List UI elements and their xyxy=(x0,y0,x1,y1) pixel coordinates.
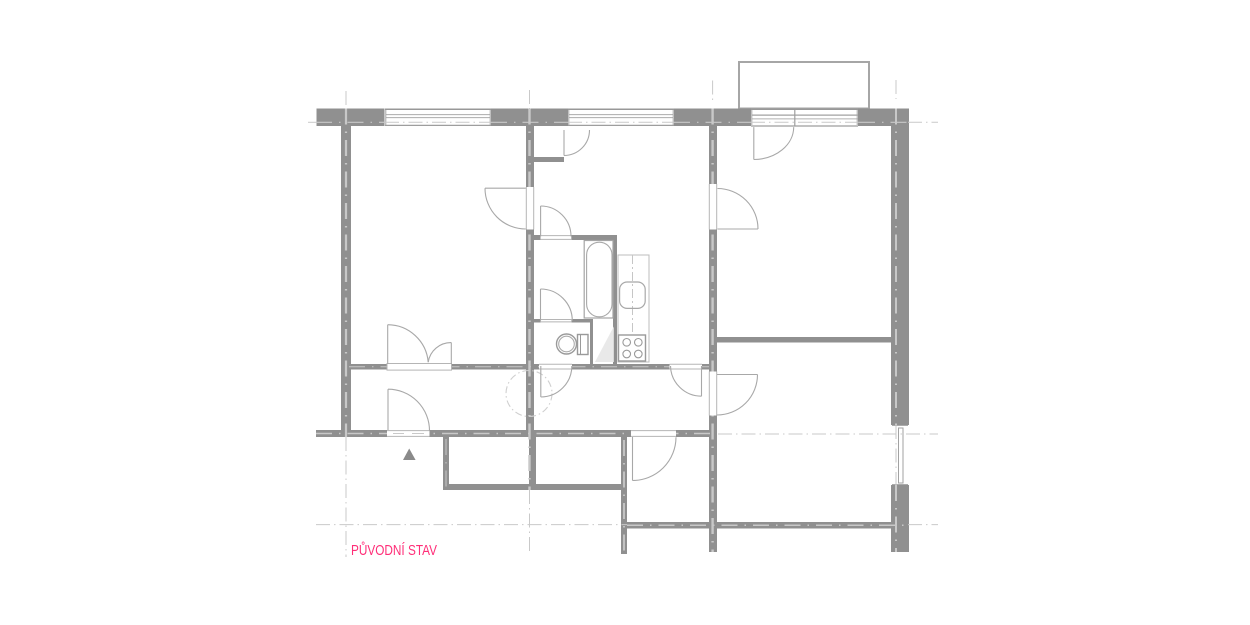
svg-text:PŮVODNÍ STAV: PŮVODNÍ STAV xyxy=(351,541,437,559)
